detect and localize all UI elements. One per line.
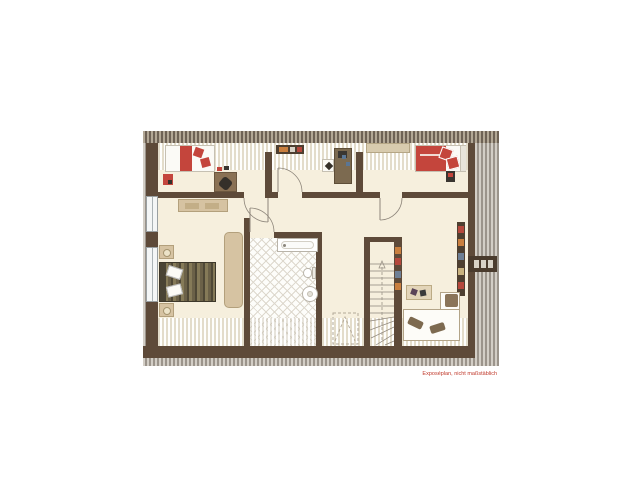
staircase-winders: [370, 317, 394, 345]
stair-direction-arrow-icon: [379, 261, 385, 268]
door-arc: [380, 198, 402, 220]
floor-plan-page: Exposéplan, nicht maßstäblich: [0, 0, 641, 500]
skylight-dashed-triangle: [335, 317, 355, 341]
floor-plan: [143, 131, 499, 366]
door-arc: [278, 168, 302, 192]
door-arc: [244, 198, 268, 222]
door-arc: [250, 208, 274, 232]
disclaimer-text: Exposéplan, nicht maßstäblich: [400, 370, 497, 378]
plan-linework: [143, 131, 499, 366]
